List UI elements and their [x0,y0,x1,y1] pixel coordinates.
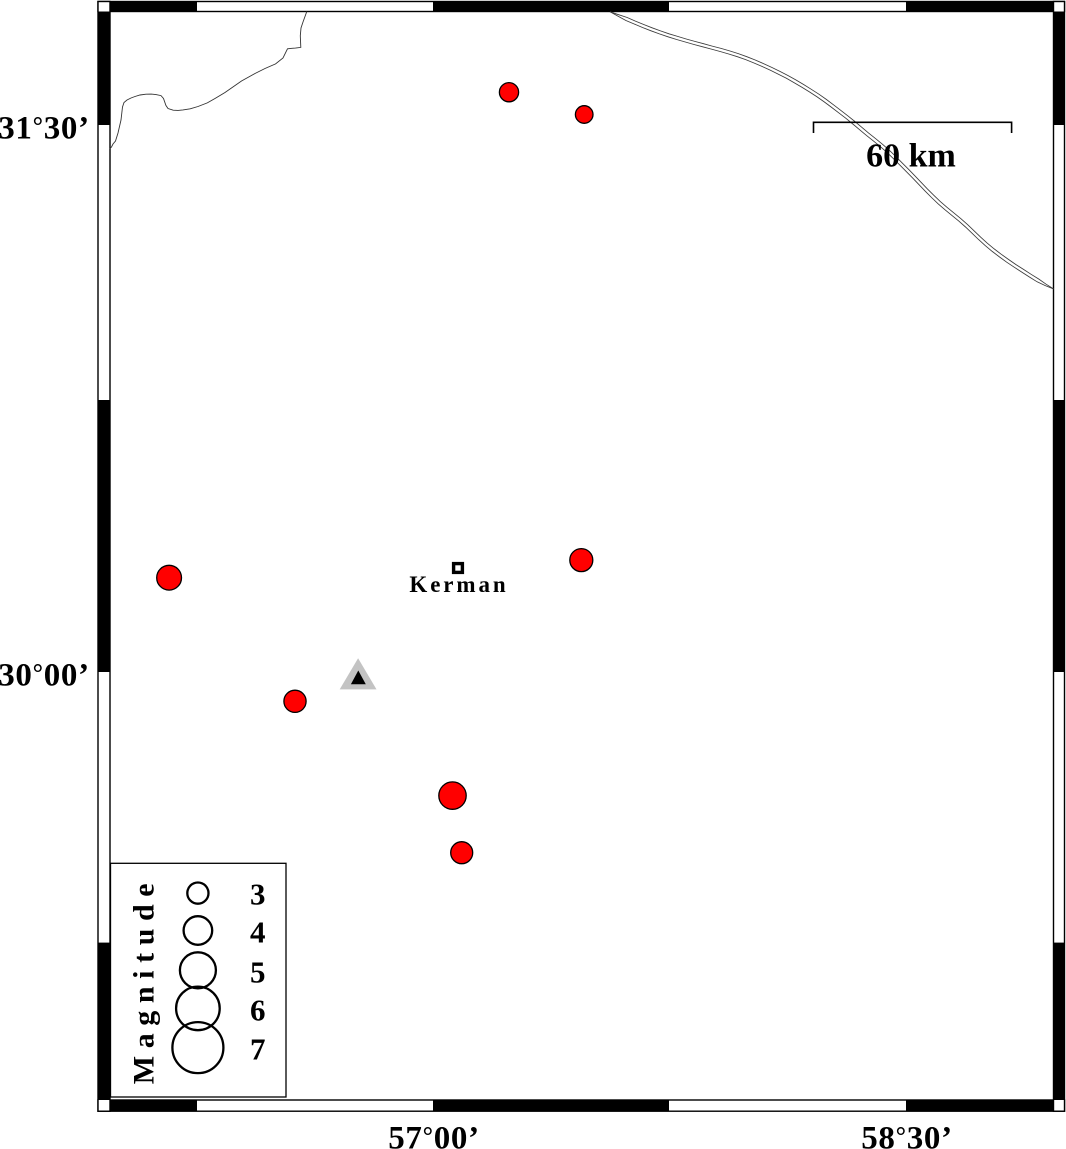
svg-text:5: 5 [250,954,266,989]
svg-text:58°30’: 58°30’ [861,1121,953,1149]
svg-text:Kerman: Kerman [409,572,508,597]
svg-text:30°00’: 30°00’ [0,658,90,694]
svg-text:6: 6 [250,993,266,1028]
svg-text:4: 4 [250,915,266,950]
svg-text:7: 7 [250,1032,266,1067]
svg-text:31°30’: 31°30’ [0,111,90,147]
svg-text:3: 3 [250,877,266,912]
svg-text:57°00’: 57°00’ [388,1121,480,1149]
svg-text:60 km: 60 km [866,138,956,175]
svg-text:Magnitude: Magnitude [128,876,161,1084]
